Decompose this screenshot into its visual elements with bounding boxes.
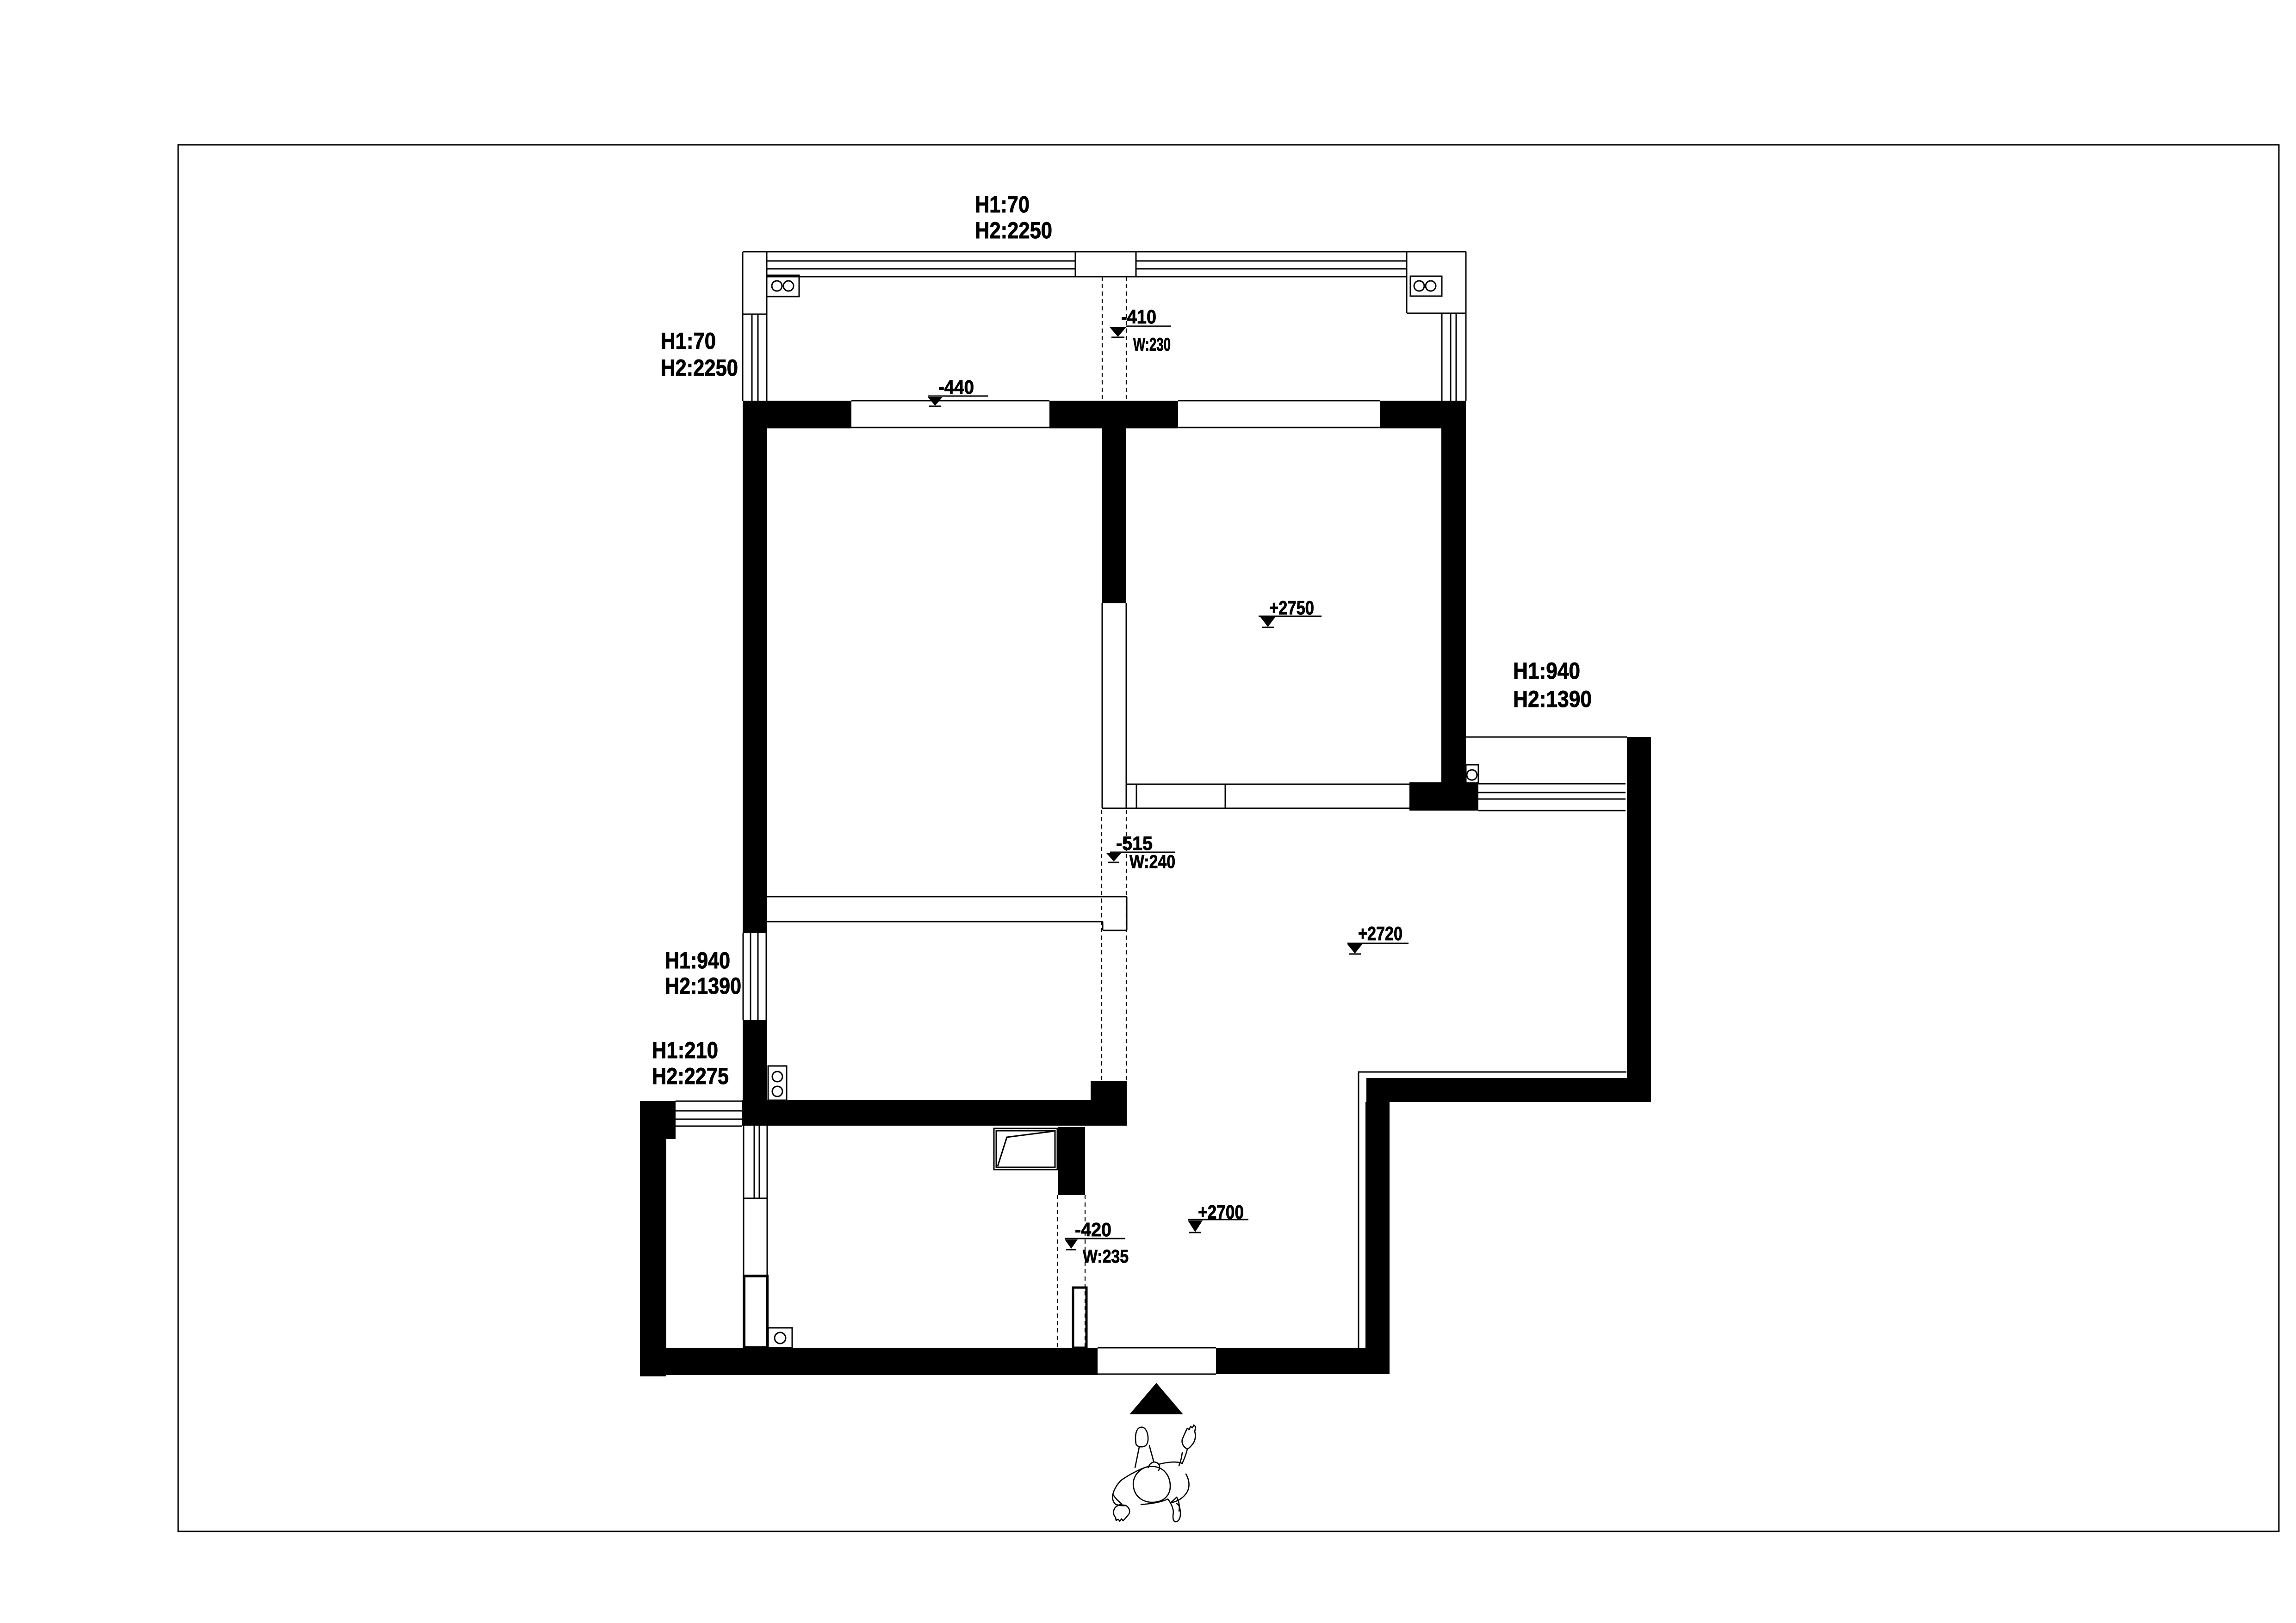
svg-text:W:230: W:230	[1133, 335, 1171, 355]
svg-text:-410: -410	[1121, 306, 1156, 328]
svg-text:-515: -515	[1116, 832, 1153, 854]
svg-text:+2700: +2700	[1198, 1201, 1244, 1223]
svg-text:H2:2250: H2:2250	[661, 355, 738, 381]
svg-text:-440: -440	[938, 376, 974, 398]
svg-text:H2:2250: H2:2250	[975, 217, 1052, 243]
svg-text:-420: -420	[1075, 1219, 1111, 1240]
svg-text:H2:2275: H2:2275	[652, 1063, 729, 1089]
svg-text:H2:1390: H2:1390	[665, 973, 741, 999]
svg-text:+2750: +2750	[1269, 597, 1314, 619]
svg-text:H1:940: H1:940	[665, 948, 730, 973]
svg-text:H1:70: H1:70	[661, 328, 716, 354]
svg-text:H1:940: H1:940	[1513, 658, 1580, 684]
svg-text:W:235: W:235	[1083, 1246, 1129, 1267]
svg-text:+2720: +2720	[1358, 923, 1402, 944]
svg-text:H2:1390: H2:1390	[1513, 686, 1592, 712]
svg-text:H1:210: H1:210	[652, 1037, 718, 1063]
svg-text:H1:70: H1:70	[975, 192, 1030, 217]
svg-text:W:240: W:240	[1129, 852, 1175, 872]
